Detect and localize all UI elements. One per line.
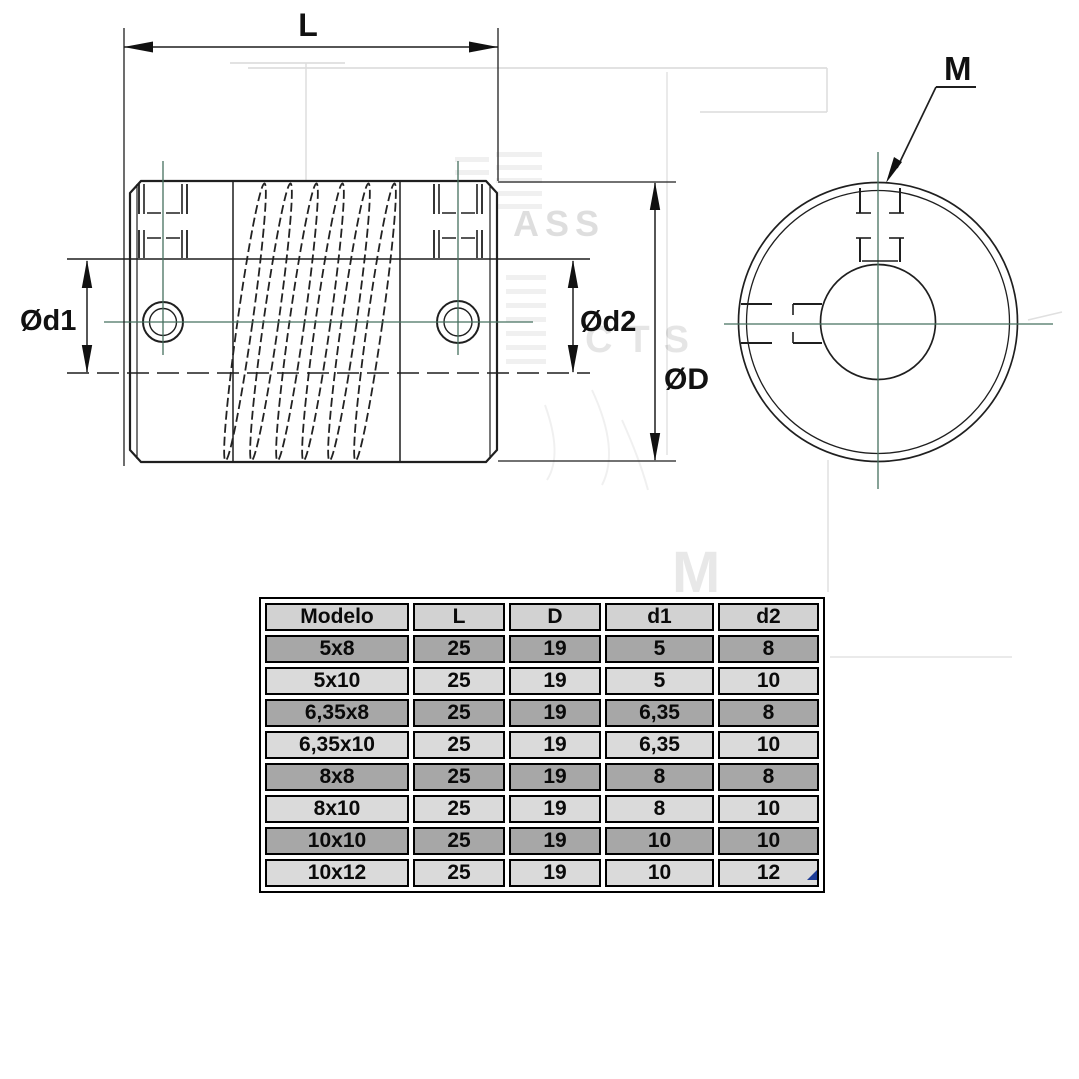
- table-cell: 5: [605, 635, 714, 663]
- table-row: 5x8 25 19 5 8: [265, 635, 819, 663]
- arrowhead: [650, 182, 660, 210]
- arrowhead: [82, 260, 92, 288]
- table-cell: 8: [718, 699, 819, 727]
- table-header-cell: L: [413, 603, 505, 631]
- table-cell: 10x10: [265, 827, 409, 855]
- watermark-fragment-3: M: [672, 540, 720, 605]
- table-cell: 19: [509, 763, 601, 791]
- watermark-fragment-1: ASS: [513, 203, 605, 244]
- table-cell: 19: [509, 859, 601, 887]
- table-cell: 19: [509, 667, 601, 695]
- dimension-d1: Ød1: [20, 260, 92, 373]
- dim-label-bore-left: Ød1: [20, 305, 76, 337]
- table-cell: 25: [413, 699, 505, 727]
- table-cell: 6,35x10: [265, 731, 409, 759]
- table-cell: 25: [413, 827, 505, 855]
- dim-label-thread: M: [944, 50, 972, 87]
- cell-corner-marker: [807, 870, 817, 880]
- table-cell: 5: [605, 667, 714, 695]
- table-row: 6,35x8 25 19 6,35 8: [265, 699, 819, 727]
- table-cell: 6,35: [605, 731, 714, 759]
- table-cell: 6,35x8: [265, 699, 409, 727]
- table-row: 5x10 25 19 5 10: [265, 667, 819, 695]
- table-row: 10x10 25 19 10 10: [265, 827, 819, 855]
- dim-label-length: L: [298, 7, 318, 43]
- end-view: M: [724, 50, 1053, 489]
- table-header-cell: d1: [605, 603, 714, 631]
- table-cell: 19: [509, 731, 601, 759]
- dim-label-bore-right: Ød2: [580, 306, 636, 338]
- watermark-scribbles: [545, 390, 648, 490]
- table-cell: 8x8: [265, 763, 409, 791]
- spec-table: Modelo L D d1 d2 5x8 25 19 5 8 5x10 25 1…: [259, 597, 825, 893]
- table-cell: 10x12: [265, 859, 409, 887]
- table-row: 8x8 25 19 8 8: [265, 763, 819, 791]
- table-cell: 25: [413, 635, 505, 663]
- table-header-cell: D: [509, 603, 601, 631]
- table-row: 10x12 25 19 10 12: [265, 859, 819, 887]
- table-cell: 19: [509, 635, 601, 663]
- table-cell: 25: [413, 859, 505, 887]
- table-cell: 25: [413, 731, 505, 759]
- table-cell: 10: [718, 667, 819, 695]
- table-cell: 5x10: [265, 667, 409, 695]
- table-cell: 10: [718, 795, 819, 823]
- table-header-cell: d2: [718, 603, 819, 631]
- table-cell: 12: [718, 859, 819, 887]
- dim-label-outer-diameter: ØD: [664, 363, 709, 396]
- table-cell: 8: [605, 795, 714, 823]
- table-cell: 25: [413, 763, 505, 791]
- table-header-row: Modelo L D d1 d2: [265, 603, 819, 631]
- table-cell: 10: [605, 859, 714, 887]
- arrowhead: [650, 433, 660, 461]
- table-cell: 8: [605, 763, 714, 791]
- table-cell: 10: [718, 827, 819, 855]
- table-row: 6,35x10 25 19 6,35 10: [265, 731, 819, 759]
- table-cell: 19: [509, 699, 601, 727]
- table-row: 8x10 25 19 8 10: [265, 795, 819, 823]
- arrowhead: [568, 345, 578, 373]
- table-cell: 8x10: [265, 795, 409, 823]
- coupling-datasheet: ASS CTS M: [0, 0, 1079, 1079]
- table-cell: 25: [413, 667, 505, 695]
- arrowhead: [124, 42, 153, 53]
- technical-drawing: ASS CTS M: [0, 0, 1079, 1079]
- table-cell: 5x8: [265, 635, 409, 663]
- table-cell: 8: [718, 635, 819, 663]
- arrowhead: [82, 345, 92, 373]
- arrowhead: [568, 260, 578, 288]
- table-cell: 25: [413, 795, 505, 823]
- table-cell: 8: [718, 763, 819, 791]
- table-cell: 10: [605, 827, 714, 855]
- table-cell: 6,35: [605, 699, 714, 727]
- table-header-cell: Modelo: [265, 603, 409, 631]
- arrowhead: [886, 157, 902, 183]
- arrowhead: [469, 42, 498, 53]
- thread-callout-M: M: [886, 50, 976, 183]
- table-cell: 19: [509, 795, 601, 823]
- table-cell: 10: [718, 731, 819, 759]
- spec-table-container: Modelo L D d1 d2 5x8 25 19 5 8 5x10 25 1…: [259, 597, 825, 893]
- table-cell: 19: [509, 827, 601, 855]
